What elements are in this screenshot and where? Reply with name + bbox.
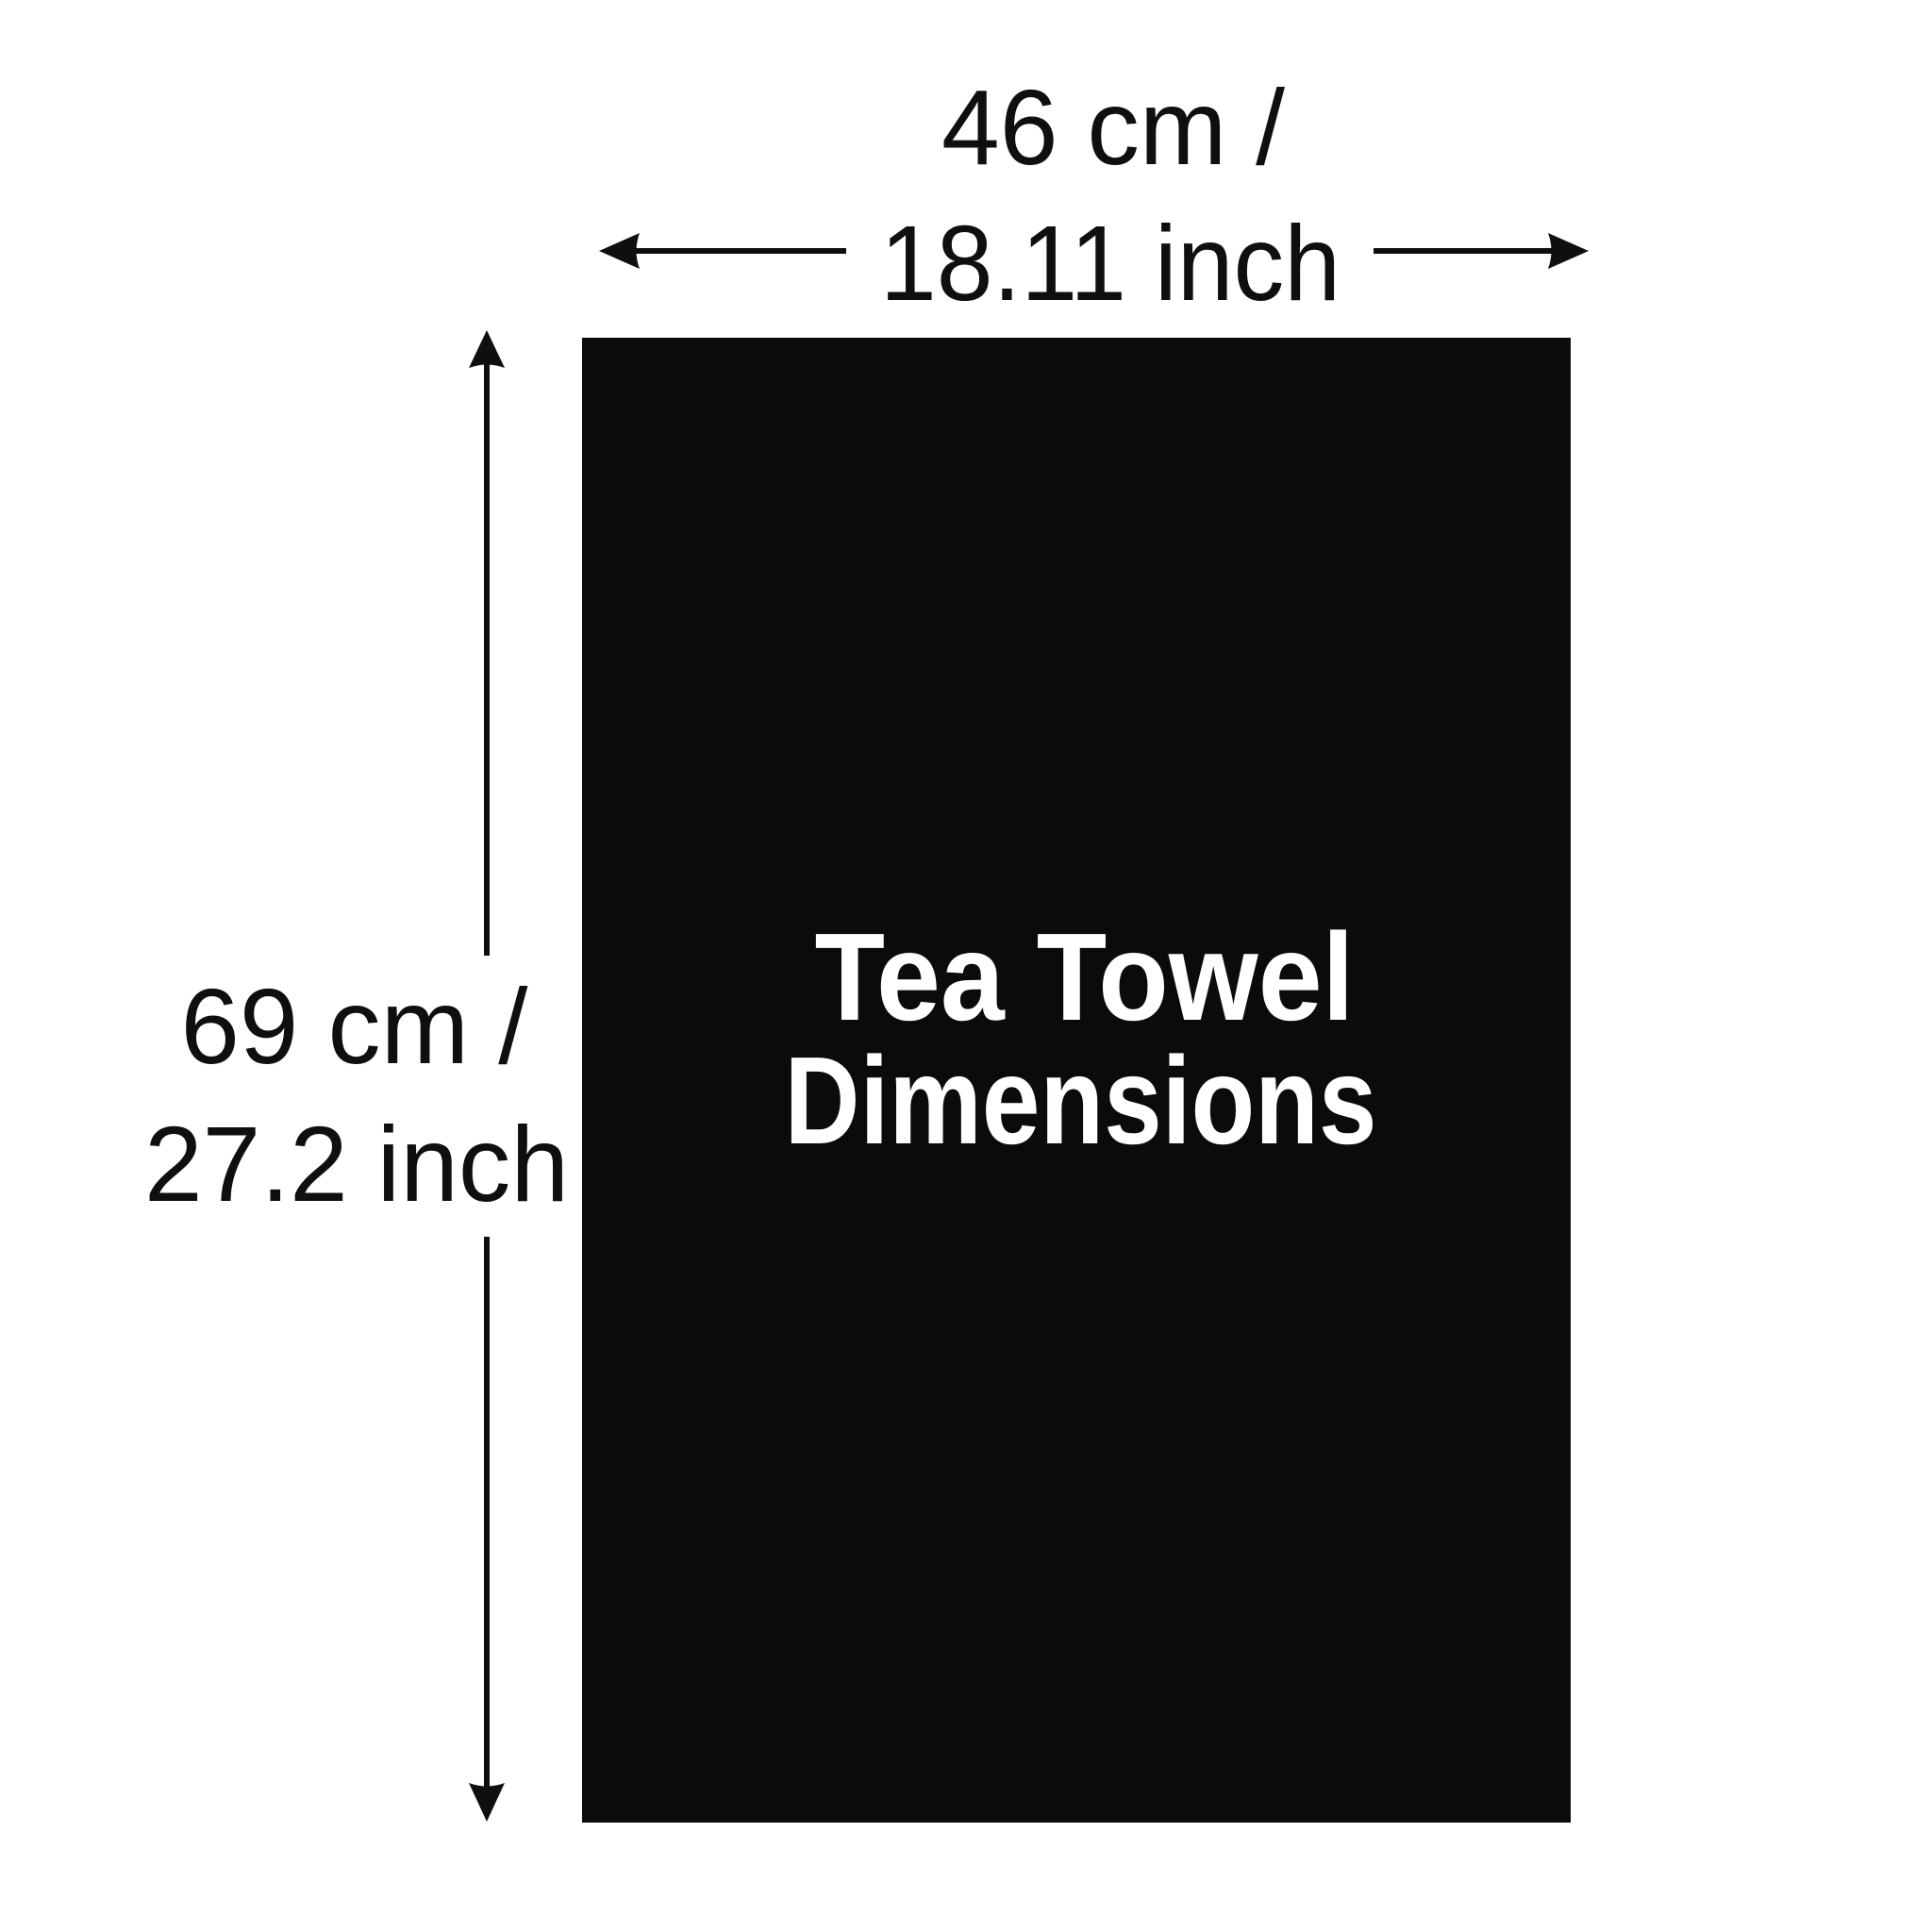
svg-text:27.2 inch: 27.2 inch	[144, 1105, 569, 1224]
svg-text:18.11 inch: 18.11 inch	[880, 204, 1341, 323]
svg-text:46 cm /: 46 cm /	[941, 68, 1286, 187]
svg-text:Tea Towel: Tea Towel	[815, 908, 1355, 1046]
svg-text:69 cm /: 69 cm /	[181, 967, 529, 1086]
svg-text:Dimensions: Dimensions	[785, 1031, 1377, 1170]
